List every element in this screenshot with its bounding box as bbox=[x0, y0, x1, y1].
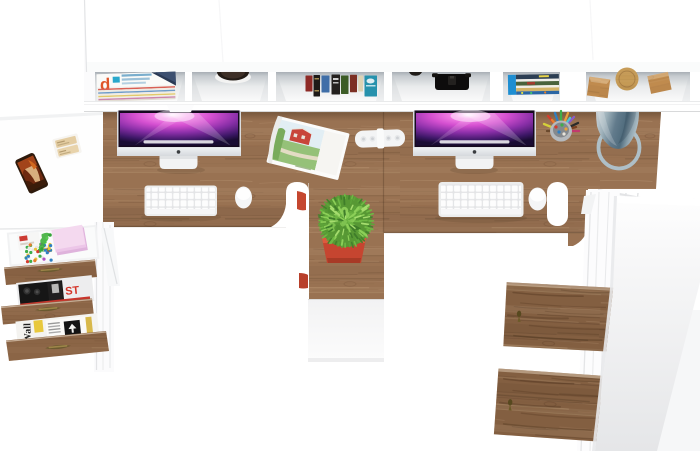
svg-text:ST: ST bbox=[65, 284, 81, 297]
